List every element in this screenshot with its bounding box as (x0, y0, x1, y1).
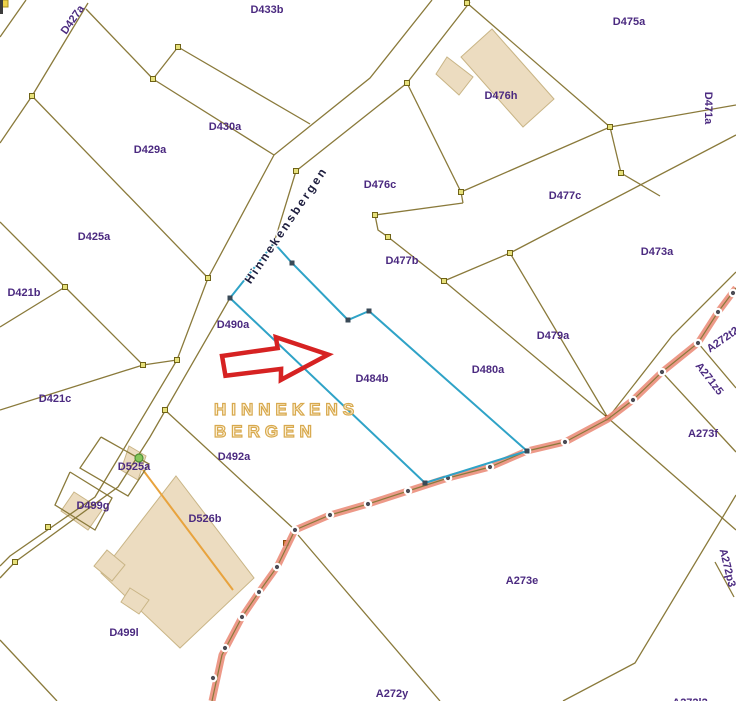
survey-point (327, 512, 333, 518)
boundary-vertex (294, 169, 299, 174)
parcel-boundary (444, 281, 608, 418)
boundary-vertex (163, 408, 168, 413)
selected-parcel-vertex (423, 481, 428, 486)
parcel-label-D421c: D421c (39, 393, 71, 405)
survey-point (730, 290, 736, 296)
road-casing (212, 288, 736, 701)
selected-parcel-vertex (272, 241, 277, 246)
parcel-boundary (65, 287, 143, 365)
boundary-vertex (63, 285, 68, 290)
survey-point (487, 464, 493, 470)
parcel-boundary (0, 0, 432, 566)
selected-parcel-vertex (525, 449, 530, 454)
parcel-label-D433b: D433b (250, 4, 283, 16)
survey-point (715, 309, 721, 315)
boundary-vertex (151, 77, 156, 82)
boundary-vertex (608, 125, 613, 130)
parcel-label-A273e: A273e (506, 575, 538, 587)
boundary-vertex (386, 235, 391, 240)
survey-point (695, 340, 701, 346)
parcel-boundary (0, 222, 65, 287)
parcel-label-A272y: A272y (376, 688, 409, 700)
survey-point (562, 439, 568, 445)
parcel-label-A273f: A273f (688, 428, 718, 440)
parcel-label-D484b: D484b (355, 373, 388, 385)
boundary-vertex (46, 525, 51, 530)
survey-point (630, 397, 636, 403)
parcel-boundary (298, 535, 440, 701)
boundary-vertex (141, 363, 146, 368)
survey-point (274, 564, 280, 570)
selected-parcel-vertex (346, 318, 351, 323)
boundary-vertex (13, 560, 18, 565)
survey-point (210, 675, 216, 681)
boundary-vertex (619, 171, 624, 176)
parcel-label-D479a: D479a (537, 330, 570, 342)
boundary-vertex (508, 251, 513, 256)
parcel-label-D477b: D477b (385, 255, 418, 267)
parcel-label-D429a: D429a (134, 144, 167, 156)
parcel-boundary (375, 203, 463, 281)
parcel-boundary (178, 47, 310, 124)
parcel-label-A272p3: A272p3 (717, 548, 736, 589)
parcel-label-D480a: D480a (472, 364, 505, 376)
selected-parcel-vertex (290, 261, 295, 266)
building-footprint (101, 476, 254, 648)
parcel-boundary (0, 640, 57, 701)
boundary-vertex (373, 213, 378, 218)
road-centerline (212, 288, 736, 701)
parcel-boundary (407, 83, 461, 192)
parcel-label-D477c: D477c (549, 190, 581, 202)
survey-point (292, 527, 298, 533)
parcel-label-D499g: D499g (76, 500, 109, 512)
selected-parcel-vertex (228, 296, 233, 301)
parcel-label-D425a: D425a (78, 231, 111, 243)
parcel-label-D526b: D526b (188, 513, 221, 525)
corner-dark-bar (0, 0, 3, 14)
parcel-label-D421b: D421b (7, 287, 40, 299)
survey-point (239, 614, 245, 620)
parcel-label-D499l: D499l (109, 627, 138, 639)
parcel-boundary (510, 135, 736, 253)
boundary-vertex (176, 45, 181, 50)
boundary-vertex (175, 358, 180, 363)
parcel-boundary (610, 105, 736, 127)
selected-parcel-vertex (367, 309, 372, 314)
survey-point (222, 645, 228, 651)
parcel-label-D427a: D427a (59, 3, 88, 37)
parcel-boundary (0, 365, 143, 410)
boundary-vertex (405, 81, 410, 86)
survey-point (405, 488, 411, 494)
parcel-label-D492a: D492a (218, 451, 251, 463)
parcel-label-D475a: D475a (613, 16, 646, 28)
survey-point (659, 369, 665, 375)
parcel-boundary (86, 9, 153, 79)
parcel-boundary (444, 253, 510, 281)
parcel-boundary (662, 372, 736, 452)
parcel-label-D476c: D476c (364, 179, 396, 191)
parcel-boundary (153, 47, 178, 79)
survey-point (365, 501, 371, 507)
parcel-boundary (143, 360, 177, 365)
parcel-boundary (32, 96, 208, 278)
parcel-boundary (610, 127, 660, 196)
parcel-boundary (563, 495, 736, 701)
parcel-label-D473a: D473a (641, 246, 674, 258)
building-footprint (461, 29, 554, 127)
boundary-vertex (465, 1, 470, 6)
parcel-boundary (461, 127, 610, 192)
cadastral-map[interactable]: D427aD433bD475aD476hD430aD429aD471aD476c… (0, 0, 736, 701)
boundary-vertex (442, 279, 447, 284)
parcel-boundary (153, 79, 274, 155)
parcel-label-D525a: D525a (118, 461, 151, 473)
parcel-label-A271z5: A271z5 (693, 360, 726, 397)
parcel-label-D471a: D471a (702, 92, 714, 125)
boundary-vertex (30, 94, 35, 99)
boundary-vertex (459, 190, 464, 195)
parcel-map-canvas[interactable]: D427aD433bD475aD476hD430aD429aD471aD476c… (0, 0, 736, 701)
parcel-label-A272l2: A272l2 (672, 697, 707, 701)
parcel-label-D476h: D476h (484, 90, 517, 102)
survey-point (256, 589, 262, 595)
parcel-label-D430a: D430a (209, 121, 242, 133)
parcel-label-D490a: D490a (217, 319, 250, 331)
boundary-vertex (206, 276, 211, 281)
